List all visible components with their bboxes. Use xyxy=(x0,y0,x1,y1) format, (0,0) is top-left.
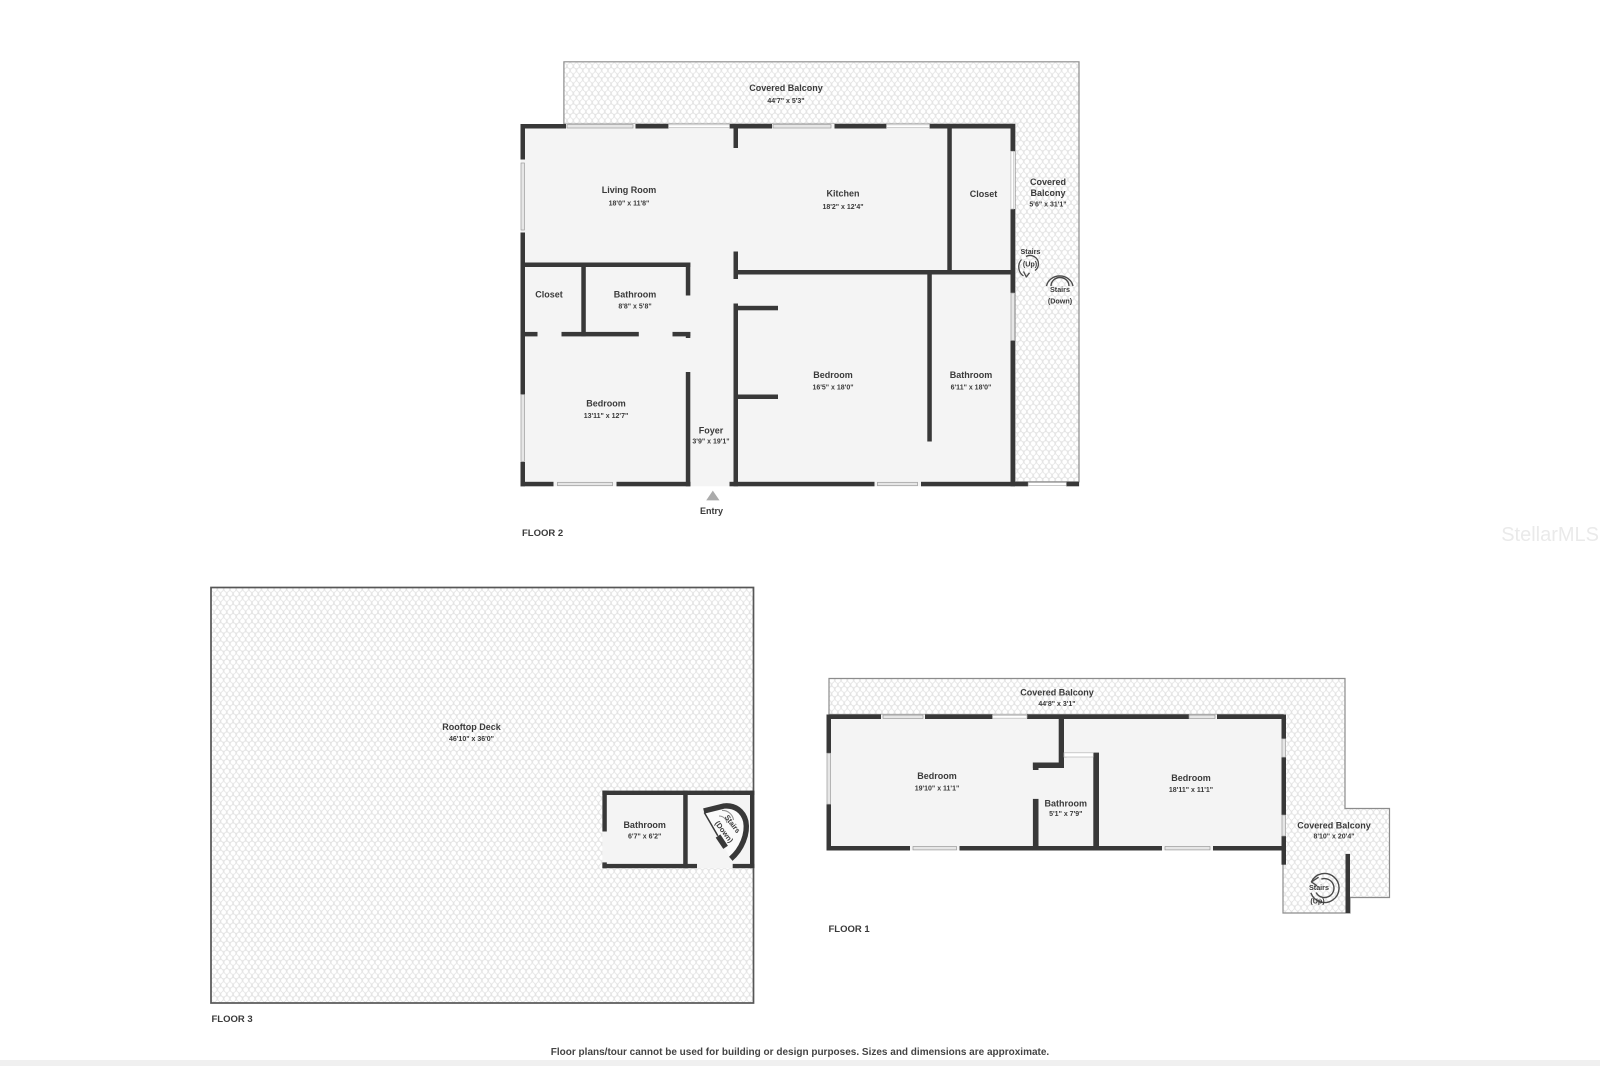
svg-text:(Up): (Up) xyxy=(1023,260,1038,269)
svg-text:Bedroom: Bedroom xyxy=(917,771,957,781)
svg-text:Rooftop Deck: Rooftop Deck xyxy=(442,722,501,732)
svg-text:Bedroom: Bedroom xyxy=(1171,773,1211,783)
svg-text:18'2" x 12'4": 18'2" x 12'4" xyxy=(822,204,863,211)
svg-text:8'8" x 5'8": 8'8" x 5'8" xyxy=(618,304,651,311)
svg-text:FLOOR 2: FLOOR 2 xyxy=(522,528,563,539)
svg-text:44'7" x 5'3": 44'7" x 5'3" xyxy=(767,98,804,105)
svg-text:8'10" x 20'4": 8'10" x 20'4" xyxy=(1313,834,1354,841)
svg-text:Closet: Closet xyxy=(535,290,563,300)
svg-text:(Down): (Down) xyxy=(1048,297,1073,306)
svg-text:5'6" x 31'1": 5'6" x 31'1" xyxy=(1029,202,1066,209)
svg-text:Stairs: Stairs xyxy=(1050,285,1070,294)
svg-text:5'1" x 7'9": 5'1" x 7'9" xyxy=(1049,811,1082,818)
svg-text:Bathroom: Bathroom xyxy=(623,820,666,830)
svg-text:Bathroom: Bathroom xyxy=(614,290,657,300)
svg-text:46'10" x 36'0": 46'10" x 36'0" xyxy=(449,736,494,743)
svg-text:Bedroom: Bedroom xyxy=(586,399,626,409)
svg-text:Stairs: Stairs xyxy=(1309,883,1329,892)
svg-text:6'11" x 18'0": 6'11" x 18'0" xyxy=(951,385,992,392)
svg-text:Balcony: Balcony xyxy=(1030,188,1065,198)
svg-text:Living Room: Living Room xyxy=(602,185,657,195)
svg-text:FLOOR 3: FLOOR 3 xyxy=(212,1014,253,1025)
svg-text:6'7" x 6'2": 6'7" x 6'2" xyxy=(628,834,661,841)
svg-text:44'8" x 3'1": 44'8" x 3'1" xyxy=(1038,701,1075,708)
svg-text:16'5" x 18'0": 16'5" x 18'0" xyxy=(812,385,853,392)
svg-text:18'0" x 11'8": 18'0" x 11'8" xyxy=(609,201,650,208)
svg-text:Closet: Closet xyxy=(970,189,998,199)
svg-text:Covered Balcony: Covered Balcony xyxy=(1297,821,1371,831)
svg-text:FLOOR 1: FLOOR 1 xyxy=(829,924,871,935)
svg-text:(Up): (Up) xyxy=(1310,897,1325,906)
svg-text:Bathroom: Bathroom xyxy=(1045,799,1088,809)
svg-text:19'10" x 11'1": 19'10" x 11'1" xyxy=(915,786,960,793)
svg-text:Entry: Entry xyxy=(700,506,723,516)
svg-text:Kitchen: Kitchen xyxy=(826,189,859,199)
svg-text:18'11" x 11'1": 18'11" x 11'1" xyxy=(1169,787,1213,794)
svg-text:Covered Balcony: Covered Balcony xyxy=(749,83,823,93)
svg-text:StellarMLS: StellarMLS xyxy=(1501,524,1599,546)
svg-text:Stairs: Stairs xyxy=(1021,247,1041,256)
svg-text:Bathroom: Bathroom xyxy=(950,370,993,380)
svg-text:3'9" x 19'1": 3'9" x 19'1" xyxy=(692,439,729,446)
svg-text:Covered Balcony: Covered Balcony xyxy=(1020,688,1094,698)
svg-text:Floor plans/tour cannot be use: Floor plans/tour cannot be used for buil… xyxy=(551,1047,1050,1058)
svg-text:Covered: Covered xyxy=(1030,177,1066,187)
svg-text:Bedroom: Bedroom xyxy=(813,370,853,380)
svg-text:13'11" x 12'7": 13'11" x 12'7" xyxy=(584,413,629,420)
svg-text:Foyer: Foyer xyxy=(699,426,724,436)
